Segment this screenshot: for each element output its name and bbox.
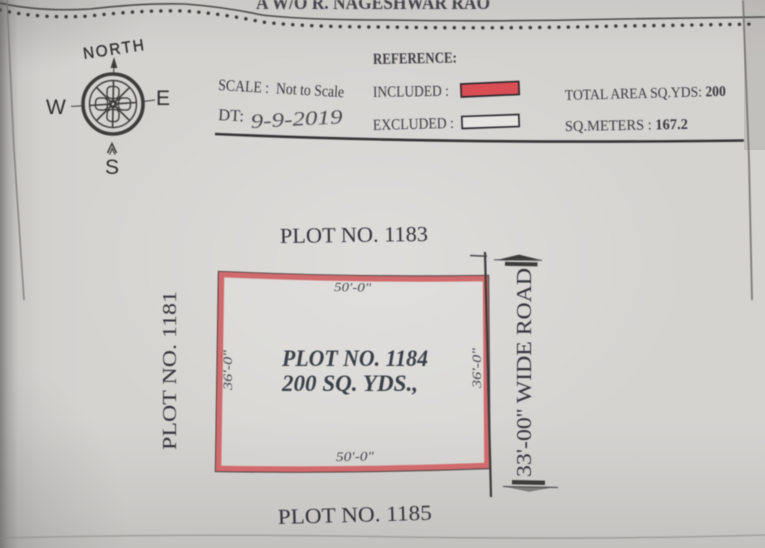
svg-text:S: S (105, 156, 119, 179)
svg-text:W: W (46, 96, 66, 119)
svg-text:PLOT NO. 1185: PLOT NO. 1185 (277, 501, 432, 529)
svg-text:E: E (156, 87, 170, 110)
svg-text:33'-00'' WIDE ROAD: 33'-00'' WIDE ROAD (512, 268, 536, 477)
svg-text:A W/O R. NAGESHWAR RAO: A W/O R. NAGESHWAR RAO (256, 0, 490, 14)
svg-text:50'-0": 50'-0" (334, 280, 372, 295)
svg-text:SCALE : Not to Scale: SCALE : Not to Scale (218, 77, 345, 101)
svg-text:SQ.METERS : 167.2: SQ.METERS : 167.2 (565, 117, 688, 135)
svg-text:200 SQ. YDS.,: 200 SQ. YDS., (281, 371, 418, 396)
svg-text:36'-0": 36'-0" (470, 347, 484, 389)
svg-text:50'-0": 50'-0" (336, 448, 375, 464)
svg-text:9-9-2019: 9-9-2019 (250, 106, 343, 133)
svg-text:36'-0": 36'-0" (221, 349, 235, 391)
svg-text:TOTAL AREA SQ.YDS: 200: TOTAL AREA SQ.YDS: 200 (565, 84, 726, 104)
svg-text:PLOT NO. 1181: PLOT NO. 1181 (159, 291, 181, 450)
svg-text:REFERENCE:: REFERENCE: (373, 50, 457, 68)
svg-text:PLOT NO. 1183: PLOT NO. 1183 (280, 222, 428, 248)
svg-text:PLOT NO. 1184: PLOT NO. 1184 (281, 346, 428, 371)
svg-text:INCLUDED :: INCLUDED : (373, 83, 449, 101)
svg-text:DT:: DT: (218, 105, 245, 125)
svg-text:EXCLUDED :: EXCLUDED : (373, 115, 454, 134)
